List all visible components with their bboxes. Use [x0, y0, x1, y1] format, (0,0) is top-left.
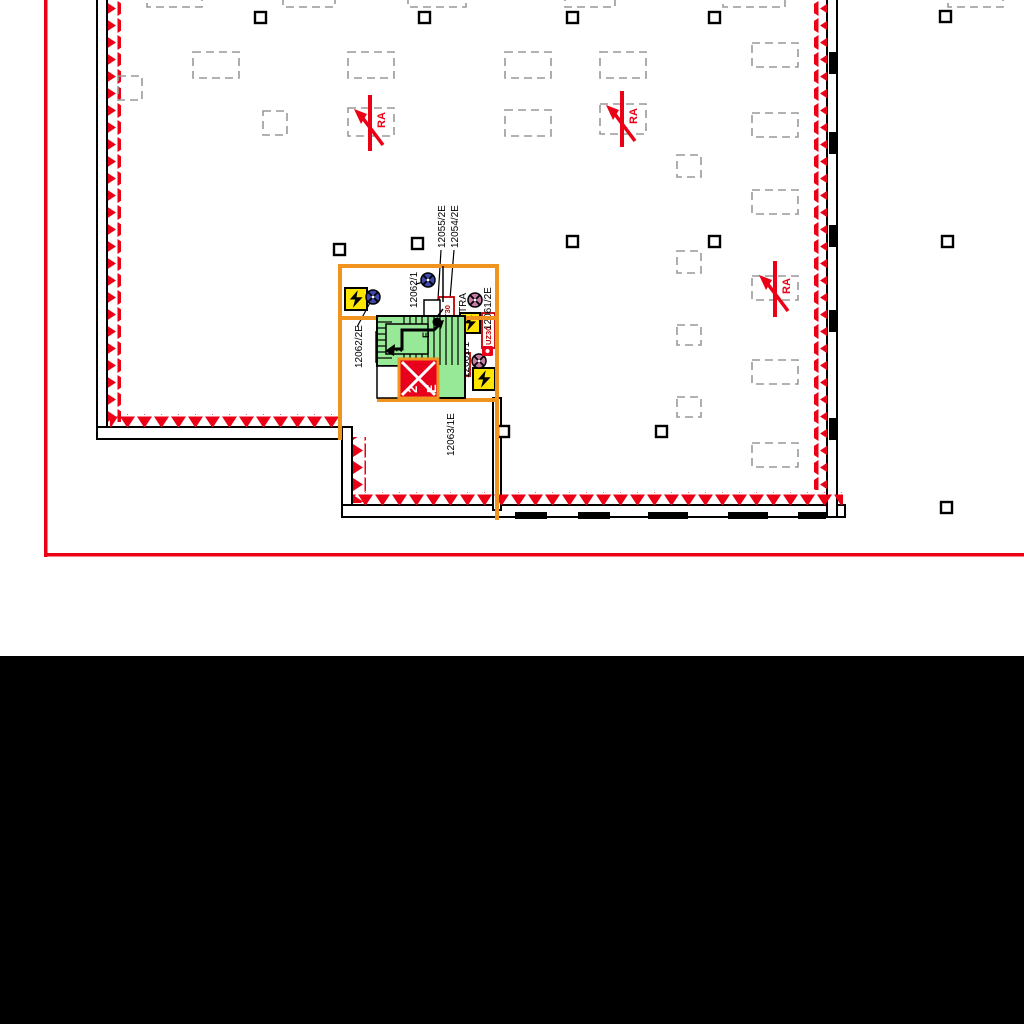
- hydrant-icon-dot: [486, 349, 490, 353]
- device-label: 12062/1: [409, 271, 420, 308]
- door-landing: [424, 300, 440, 316]
- fire-wall-marking-bottom-left: [110, 414, 338, 427]
- smoke-vent-label: RA: [781, 278, 793, 294]
- roof-opening-dashed: [565, 0, 615, 7]
- door-gap: [250, 428, 266, 438]
- wall-door-segment: [515, 512, 547, 519]
- device-label: 12063/1E: [446, 413, 457, 456]
- roof-opening-dashed: [505, 110, 551, 136]
- screenshot-stage: RARARAT30T30T30UZ3012062/2E12062/112055/…: [0, 0, 1024, 1024]
- wall-left: [97, 0, 107, 437]
- wall-door-segment: [829, 52, 836, 74]
- fire-wall-marking-bottom: [353, 492, 843, 505]
- roof-opening-dashed: [147, 0, 202, 7]
- fire-wall-marking-right: [814, 0, 827, 490]
- junction-dot-icon: [433, 318, 442, 327]
- stair-exit-letter: E: [421, 332, 431, 338]
- column-marker: [419, 12, 430, 23]
- fire-wall-marking-left: [108, 0, 121, 422]
- roof-opening-dashed: [263, 111, 287, 135]
- wall-door-segment: [829, 132, 836, 154]
- roof-opening-dashed: [600, 52, 646, 78]
- lamp-center-dot: [427, 279, 430, 282]
- column-marker: [498, 426, 509, 437]
- roof-opening-dashed: [408, 0, 466, 7]
- column-marker: [942, 236, 953, 247]
- wall-door-segment: [578, 512, 610, 519]
- roof-opening-dashed: [948, 0, 1003, 7]
- exit-sign-route-number: 2: [405, 386, 420, 393]
- roof-opening-dashed: [723, 0, 785, 7]
- wall-door-segment: [648, 512, 688, 519]
- roof-opening-dashed: [752, 360, 798, 384]
- safety-lamp-icon: [468, 293, 482, 307]
- roof-opening-dashed: [752, 43, 798, 67]
- lamp-center-dot: [474, 299, 477, 302]
- column-marker: [940, 11, 951, 22]
- roof-opening-dashed: [283, 0, 335, 7]
- smoke-vent-symbol: RA: [759, 261, 793, 317]
- wall-door-segment: [829, 310, 836, 332]
- device-label: 12054/2E: [450, 205, 461, 248]
- roof-opening-dashed: [677, 325, 701, 345]
- wall-bottom-left: [97, 427, 342, 439]
- roof-opening-dashed: [118, 76, 142, 100]
- lamp-center-dot: [372, 296, 375, 299]
- roof-opening-dashed: [677, 397, 701, 417]
- drawing-border-bottom: [44, 553, 1024, 557]
- wall-door-segment: [728, 512, 768, 519]
- roof-opening-dashed: [505, 52, 551, 78]
- stair-pocket: [377, 366, 399, 398]
- wall-door-segment: [829, 418, 836, 440]
- smoke-vent-symbol: RA: [606, 91, 640, 147]
- smoke-vent-symbol: RA: [354, 95, 388, 151]
- hazard-lightning-box: [473, 368, 495, 390]
- device-label: 12062/2E: [354, 325, 365, 368]
- wall-door-segment: [798, 512, 826, 519]
- column-marker: [334, 244, 345, 255]
- safety-lamp-icon: [366, 290, 380, 304]
- roof-opening-dashed: [752, 190, 798, 214]
- drawing-border-left: [44, 0, 48, 557]
- column-marker: [412, 238, 423, 249]
- stair-route-number: 2: [394, 347, 404, 352]
- column-marker: [709, 236, 720, 247]
- wall-door-segment: [829, 225, 836, 247]
- column-marker: [567, 236, 578, 247]
- column-marker: [941, 502, 952, 513]
- wall-extension-left: [342, 427, 352, 517]
- safety-lamp-icon: [472, 354, 486, 368]
- smoke-vent-label: RA: [376, 112, 388, 128]
- column-marker: [255, 12, 266, 23]
- column-marker: [567, 12, 578, 23]
- smoke-vent-label: RA: [628, 108, 640, 124]
- column-marker: [656, 426, 667, 437]
- roof-opening-dashed: [677, 251, 701, 273]
- roof-opening-dashed: [752, 113, 798, 137]
- hazard-lightning-box: [345, 288, 367, 310]
- roof-opening-dashed: [677, 155, 701, 177]
- exit-sign-exit-letter: E: [424, 384, 439, 393]
- floor-plan-canvas: RARARAT30T30T30UZ3012062/2E12062/112055/…: [0, 0, 1024, 656]
- roof-opening-dashed: [752, 443, 798, 467]
- device-label: 12061/2E: [483, 287, 494, 330]
- roof-opening-dashed: [348, 52, 394, 78]
- device-label: TRA: [458, 293, 469, 313]
- black-mask: [0, 656, 1024, 1024]
- exit-sign: 2 E: [399, 359, 439, 398]
- device-label: 12055/2E: [437, 205, 448, 248]
- column-marker: [709, 12, 720, 23]
- lamp-center-dot: [478, 360, 481, 363]
- roof-opening-dashed: [193, 52, 239, 78]
- safety-lamp-icon: [421, 273, 435, 287]
